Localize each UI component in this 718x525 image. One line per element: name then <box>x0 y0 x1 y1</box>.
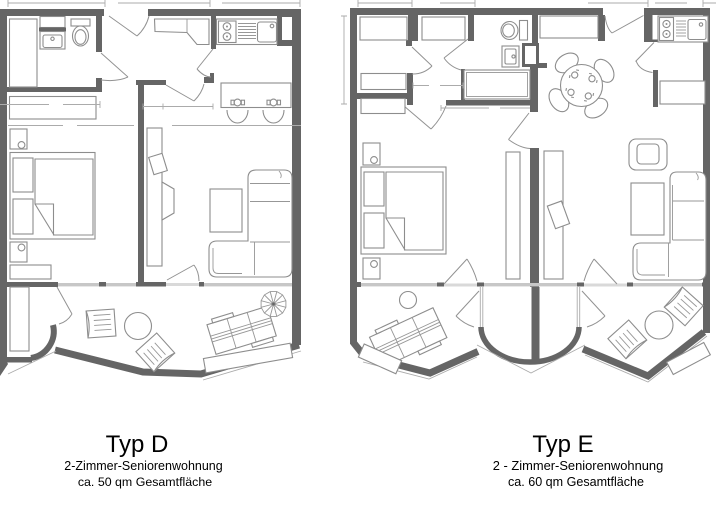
svg-text:Typ E: Typ E <box>532 431 593 458</box>
svg-text:Typ D: Typ D <box>106 431 169 458</box>
svg-text:2-Zimmer-Seniorenwohnung: 2-Zimmer-Seniorenwohnung <box>64 459 222 473</box>
svg-text:2 - Zimmer-Seniorenwohnung: 2 - Zimmer-Seniorenwohnung <box>493 458 664 473</box>
svg-text:ca. 50 qm Gesamtfläche: ca. 50 qm Gesamtfläche <box>78 475 212 489</box>
svg-text:ca. 60 qm Gesamtfläche: ca. 60 qm Gesamtfläche <box>508 475 644 489</box>
